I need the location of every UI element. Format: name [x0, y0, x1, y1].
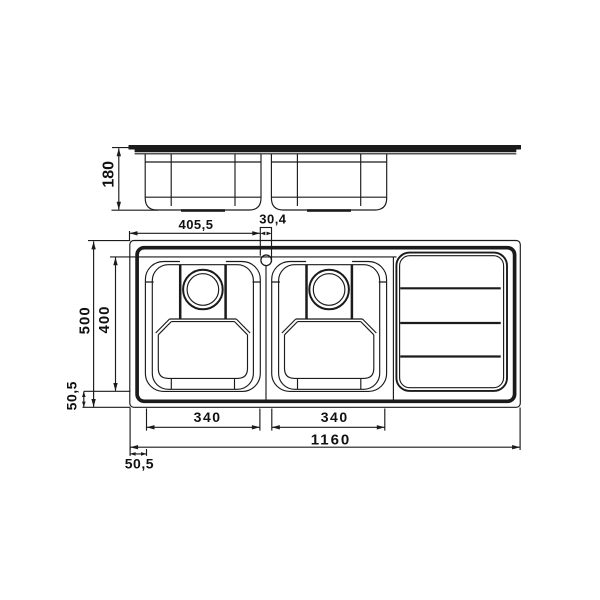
- svg-text:30,4: 30,4: [259, 212, 287, 227]
- svg-text:500: 500: [77, 306, 94, 334]
- svg-text:50,5: 50,5: [125, 456, 154, 472]
- svg-text:50,5: 50,5: [63, 381, 79, 410]
- svg-text:405,5: 405,5: [178, 217, 213, 232]
- svg-text:180: 180: [100, 161, 117, 188]
- svg-text:400: 400: [96, 305, 113, 333]
- svg-text:340: 340: [321, 409, 349, 425]
- svg-text:340: 340: [194, 409, 222, 425]
- svg-text:1160: 1160: [311, 432, 352, 449]
